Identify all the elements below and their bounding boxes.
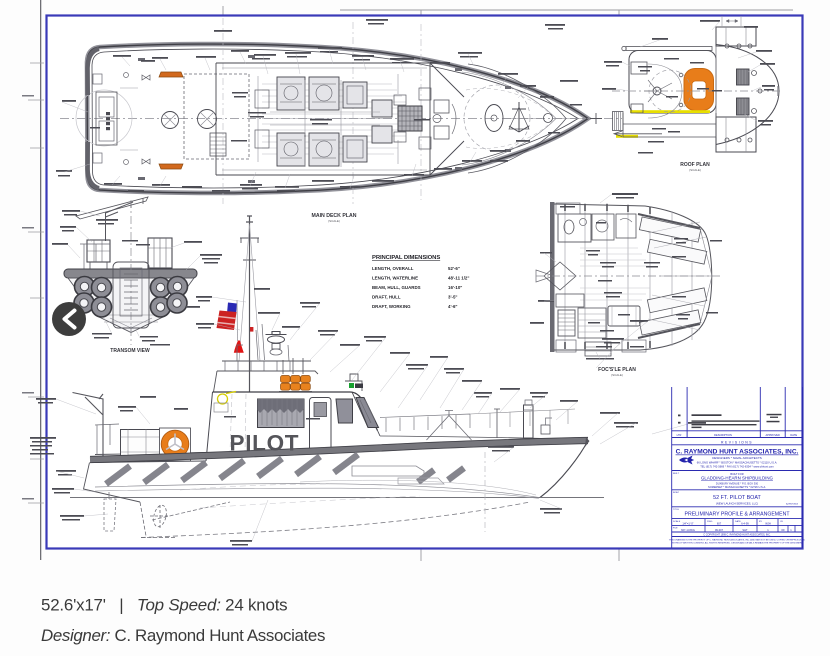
svg-text:6-4-99: 6-4-99 xyxy=(741,521,749,525)
svg-text:607: 607 xyxy=(717,521,722,525)
svg-text:BEAM, HULL, GUARDS: BEAM, HULL, GUARDS xyxy=(372,285,421,290)
svg-text:TITLE: TITLE xyxy=(673,509,679,511)
svg-text:PRELIMINARY PROFILE & ARRANGEM: PRELIMINARY PROFILE & ARRANGEMENT xyxy=(684,512,790,518)
svg-text:48'-11 1/2": 48'-11 1/2" xyxy=(448,276,469,281)
svg-text:66 LONG WHARF * BOSTON * MASSA: 66 LONG WHARF * BOSTON * MASSACHUSETTS *… xyxy=(697,461,778,465)
svg-text:LENGTH, OVERALL: LENGTH, OVERALL xyxy=(372,266,414,271)
svg-text:SOMERSET * MASSACHUSETTS * 027: SOMERSET * MASSACHUSETTS * 02726 U.S.A. xyxy=(708,485,766,489)
svg-text:FILE: FILE xyxy=(673,528,678,530)
svg-text:16'-10": 16'-10" xyxy=(448,285,462,290)
svg-text:99-007: 99-007 xyxy=(715,528,724,532)
svg-text:C. RAYMOND HUNT ASSOCIATES, IN: C. RAYMOND HUNT ASSOCIATES, INC. xyxy=(676,449,799,456)
svg-text:DRAFT, HULL: DRAFT, HULL xyxy=(372,295,401,300)
svg-text:Designer: C. Raymond Hunt Asso: Designer: C. Raymond Hunt Associates xyxy=(41,626,325,645)
svg-text:WJH: WJH xyxy=(765,521,771,525)
svg-text:SHT: SHT xyxy=(742,528,748,532)
svg-text:1/4"=1'-0": 1/4"=1'-0" xyxy=(682,521,693,525)
svg-text:DUXBURY AVENUE * P.O. BOX 300: DUXBURY AVENUE * P.O. BOX 300 xyxy=(716,482,759,486)
svg-text:(SCALE): (SCALE) xyxy=(328,219,340,223)
svg-text:WITHOUT WRITTEN CONSENT. ALL R: WITHOUT WRITTEN CONSENT. ALL RIGHTS RESE… xyxy=(672,542,803,545)
svg-text:BOAT: BOAT xyxy=(673,491,679,494)
svg-text:BUILT: BUILT xyxy=(673,473,680,475)
svg-text:DESCRIPTION: DESCRIPTION xyxy=(714,433,732,437)
svg-text:DWG: DWG xyxy=(707,521,713,523)
svg-text:DRAFT, WORKING: DRAFT, WORKING xyxy=(372,304,411,309)
svg-text:A-99070604: A-99070604 xyxy=(786,503,799,506)
svg-text:OF: OF xyxy=(781,528,785,532)
svg-text:C COPYRIGHT 1999 C. RAYMOND: C COPYRIGHT 1999 C. RAYMOND HUNT ASSOCIA… xyxy=(703,533,771,536)
svg-text:PILOT: PILOT xyxy=(230,430,300,455)
svg-text:GLADDING-HEARN SHIPBUILDING: GLADDING-HEARN SHIPBUILDING xyxy=(701,476,774,481)
svg-text:TEL (617) 742-5669 * FAX (617): TEL (617) 742-5669 * FAX (617) 742-6354 … xyxy=(700,465,774,469)
svg-text:52'-6": 52'-6" xyxy=(448,266,460,271)
svg-text:LTR: LTR xyxy=(677,433,682,437)
svg-text:(SCALE): (SCALE) xyxy=(689,168,701,172)
svg-text:4'-6": 4'-6" xyxy=(448,304,457,309)
svg-text:LENGTH, WATERLINE: LENGTH, WATERLINE xyxy=(372,276,418,281)
svg-text:(SCALE): (SCALE) xyxy=(611,373,623,377)
svg-text:(NEW LAUNCH SERVICES, LLC): (NEW LAUNCH SERVICES, LLC) xyxy=(716,502,758,506)
svg-text:REVISIONS: REVISIONS xyxy=(721,440,753,444)
svg-text:52.6'x17' | Top Speed: 24: 52.6'x17' | Top Speed: 24 knots xyxy=(41,596,287,615)
svg-text:THIS DRAWING IS THE PROPERTY O: THIS DRAWING IS THE PROPERTY OF C. RAYMO… xyxy=(669,538,806,541)
svg-text:3'-5": 3'-5" xyxy=(448,295,457,300)
svg-text:PRINCIPAL DIMENSIONS: PRINCIPAL DIMENSIONS xyxy=(372,255,440,261)
svg-text:DATE: DATE xyxy=(790,433,797,437)
svg-text:TRANSOM VIEW: TRANSOM VIEW xyxy=(110,348,150,354)
svg-text:CK: CK xyxy=(780,521,784,523)
svg-text:APPROVED: APPROVED xyxy=(765,433,780,437)
svg-text:52 FT. PILOT BOAT: 52 FT. PILOT BOAT xyxy=(713,495,761,501)
svg-text:SCALE: SCALE xyxy=(673,520,681,523)
svg-text:607-1.DWG: 607-1.DWG xyxy=(681,528,695,532)
svg-text:DESIGNERS * NAVAL ARCHITECTS: DESIGNERS * NAVAL ARCHITECTS xyxy=(712,456,762,460)
